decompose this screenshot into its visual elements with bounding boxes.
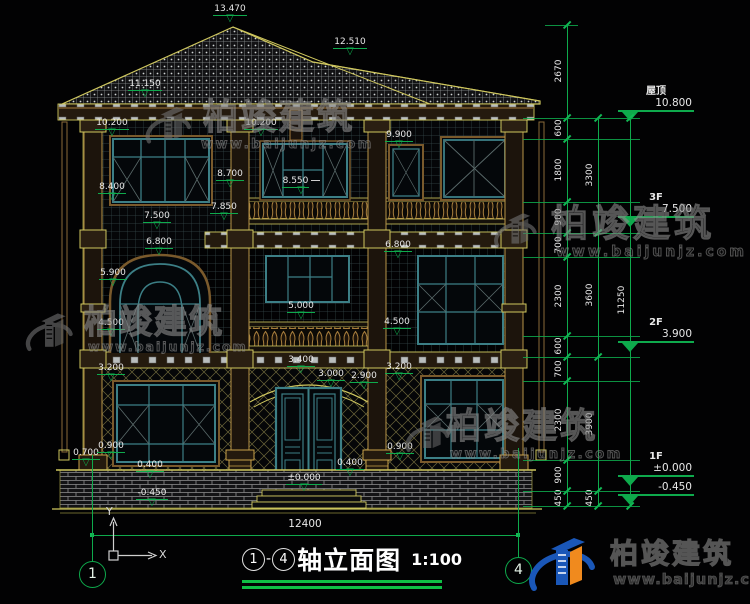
company-logo-icon <box>518 532 608 602</box>
company-logo-url: www.baijunjz.com <box>613 573 750 588</box>
drawing-title: 1-4轴立面图1:100 <box>242 541 462 589</box>
title-text: 轴立面图 <box>297 541 401 577</box>
title-underline <box>242 580 442 583</box>
ucs-y-label: Y <box>106 505 113 518</box>
axis-range-dash: - <box>266 551 271 567</box>
axis-circle-to: 4 <box>272 548 295 571</box>
axis-circle-from: 1 <box>242 548 265 571</box>
ucs-x-label: X <box>159 548 167 561</box>
title-underline-2 <box>242 586 442 589</box>
company-logo-text: 柏竣建筑 <box>610 540 734 568</box>
company-logo: 柏竣建筑 www.baijunjz.com <box>518 532 750 602</box>
cad-canvas: 13.470▽12.510▽11.150▽10.200▽10.200▽9.900… <box>0 0 750 604</box>
title-scale: 1:100 <box>411 550 462 569</box>
